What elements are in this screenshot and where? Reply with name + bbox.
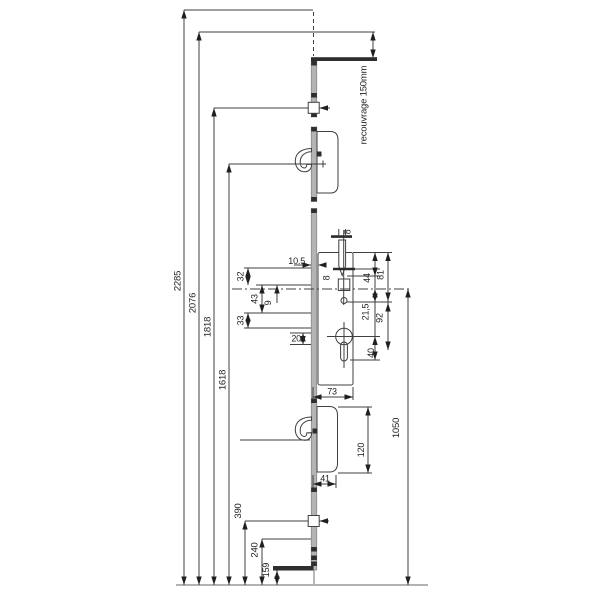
dim-label-20: 20 xyxy=(291,334,301,344)
dim-label-120: 120 xyxy=(356,443,366,458)
bottom-end-plate xyxy=(273,566,314,571)
technical-drawing-page: recouvrage 150mm xyxy=(0,0,600,600)
dim-label-81: 81 xyxy=(376,270,386,280)
dim-label-follower-8: 8 xyxy=(322,275,332,280)
axis-to-bottom-dimension xyxy=(405,289,410,585)
recouvrage-label: recouvrage 150mm xyxy=(359,65,370,144)
dim-label-40: 40 xyxy=(366,348,376,358)
dimension-labels: 2285 2076 1818 1618 390 240 159 8 8 10.5… xyxy=(173,229,403,577)
roller-cam-top xyxy=(308,102,330,113)
dim-label-159: 159 xyxy=(261,563,271,578)
hook-unit-bottom xyxy=(240,407,372,489)
euro-cylinder xyxy=(327,322,361,368)
dim-label-10-5: 10.5 xyxy=(288,256,305,266)
dim-label-21-5: 21,5 xyxy=(361,303,371,320)
dim-label-390: 390 xyxy=(233,503,244,518)
recouvrage-dimension: recouvrage 150mm xyxy=(359,32,376,144)
dim-label-1818: 1818 xyxy=(203,317,214,337)
dim-label-2285: 2285 xyxy=(173,271,184,291)
dim-label-1618: 1618 xyxy=(218,370,229,390)
left-dimension-lines xyxy=(184,10,375,585)
dim-label-43: 43 xyxy=(250,294,260,304)
dim-label-92: 92 xyxy=(375,313,385,323)
dim-label-latch-8: 8 xyxy=(343,229,353,234)
roller-cam-bottom xyxy=(308,516,329,527)
multipoint-lock-diagram: recouvrage 150mm xyxy=(0,0,600,600)
hook-bolt-top xyxy=(295,149,311,172)
dim-label-1050: 1050 xyxy=(391,418,402,438)
dim-label-240: 240 xyxy=(250,542,261,557)
dim-label-73: 73 xyxy=(327,387,337,397)
dim-label-9: 9 xyxy=(263,300,273,305)
hook-bolt-bottom xyxy=(295,417,311,440)
top-end-plate xyxy=(311,57,377,61)
dim-label-33: 33 xyxy=(236,316,246,326)
hook-unit-top xyxy=(229,132,338,194)
dim-label-2076: 2076 xyxy=(188,293,199,313)
dim-label-41: 41 xyxy=(320,474,330,484)
dim-label-44: 44 xyxy=(362,273,372,283)
dim-label-32: 32 xyxy=(236,272,246,282)
